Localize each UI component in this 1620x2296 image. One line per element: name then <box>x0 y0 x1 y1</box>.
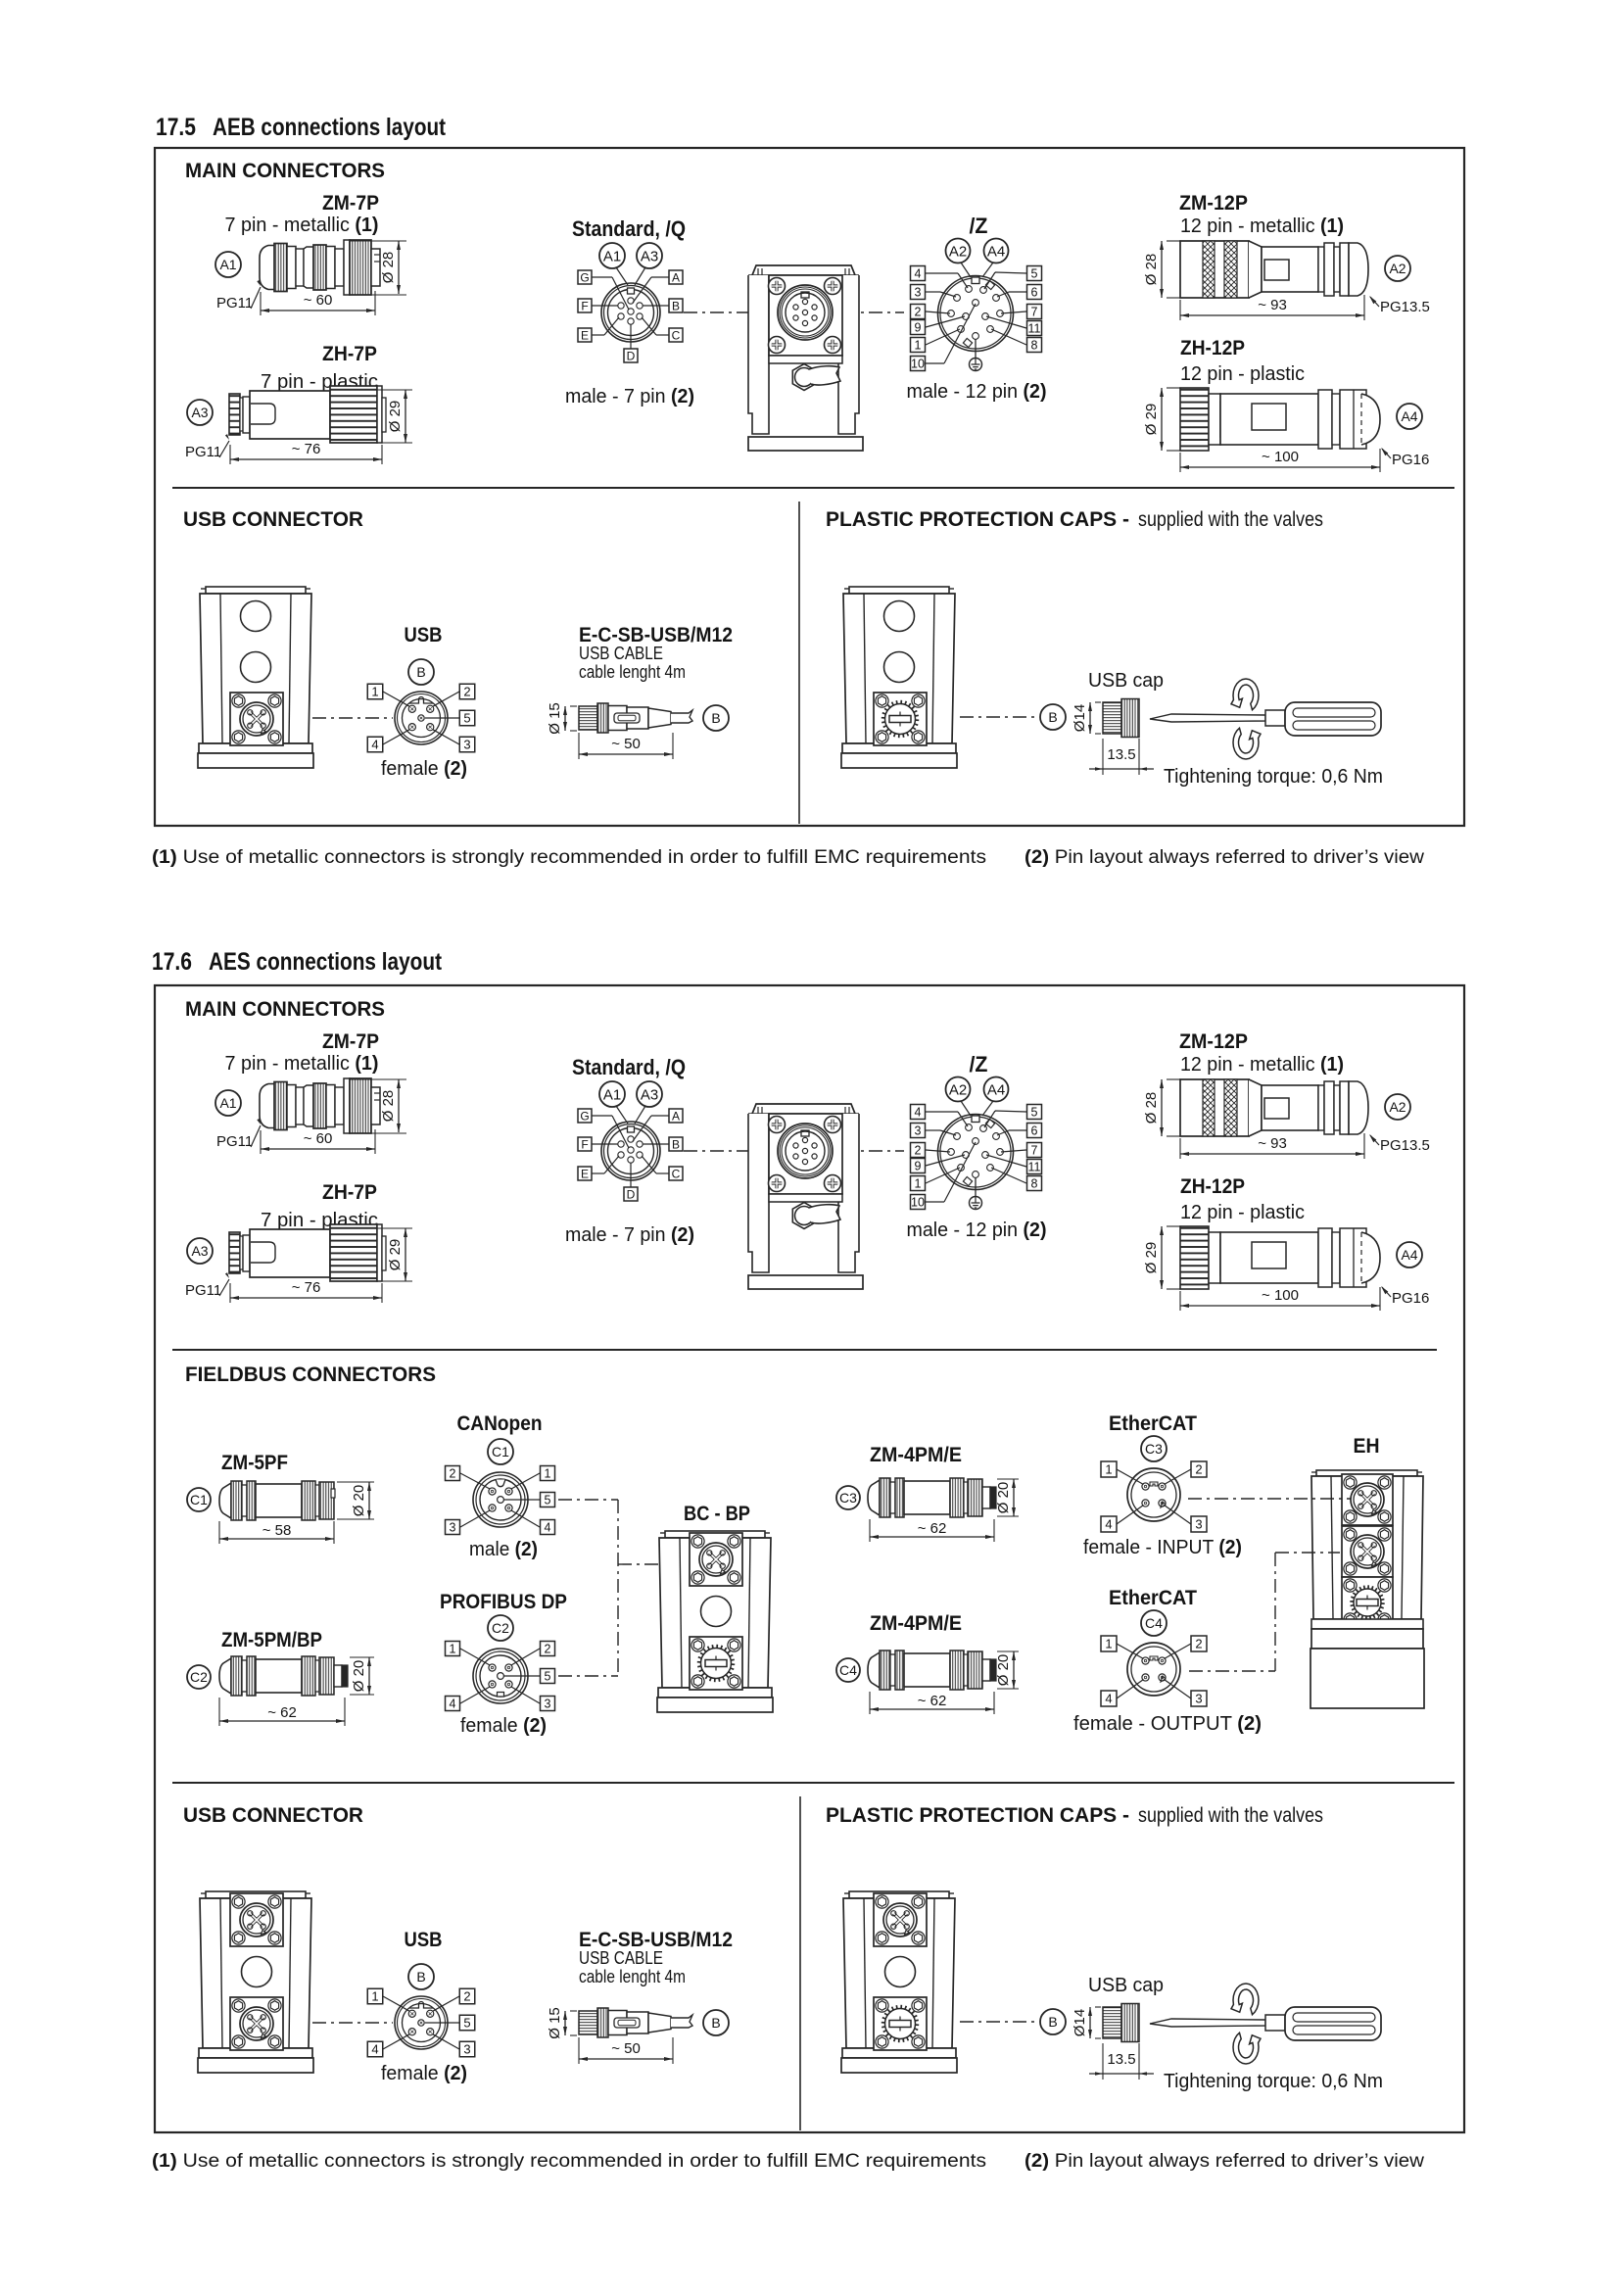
svg-text:Ø 29: Ø 29 <box>1143 404 1160 436</box>
svg-text:~ 76: ~ 76 <box>292 441 321 457</box>
svg-text:A2: A2 <box>1389 261 1406 276</box>
svg-text:4: 4 <box>371 738 378 752</box>
svg-text:ZM-7P: ZM-7P <box>322 192 379 215</box>
svg-text:E: E <box>581 328 589 342</box>
svg-text:Standard, /Q: Standard, /Q <box>572 216 686 241</box>
svg-text:2: 2 <box>545 1643 551 1656</box>
svg-text:~ 62: ~ 62 <box>918 1693 947 1709</box>
svg-text:3: 3 <box>545 1698 551 1711</box>
svg-text:6: 6 <box>1031 286 1038 300</box>
svg-text:A4: A4 <box>1401 408 1417 424</box>
svg-text:17.6: 17.6 <box>152 948 192 976</box>
svg-text:7 pin - metallic (1): 7 pin - metallic (1) <box>225 215 379 236</box>
svg-text:1: 1 <box>1105 1462 1112 1477</box>
svg-text:EtherCAT: EtherCAT <box>1109 1587 1197 1609</box>
svg-text:10: 10 <box>911 358 925 371</box>
svg-text:7: 7 <box>1031 306 1038 319</box>
svg-text:female - INPUT (2): female - INPUT (2) <box>1083 1537 1242 1558</box>
svg-text:PG13.5: PG13.5 <box>1380 299 1430 315</box>
svg-text:Ø 20: Ø 20 <box>351 1660 367 1693</box>
svg-text:Ø 28: Ø 28 <box>380 252 397 284</box>
svg-text:13.5: 13.5 <box>1107 746 1135 763</box>
svg-text:2: 2 <box>450 1467 456 1481</box>
svg-text:C2: C2 <box>492 1620 509 1636</box>
svg-text:4: 4 <box>1105 1692 1112 1706</box>
svg-text:B: B <box>1048 709 1057 725</box>
svg-text:/Z: /Z <box>970 214 988 238</box>
svg-text:C1: C1 <box>492 1444 509 1459</box>
svg-text:2: 2 <box>463 685 470 699</box>
svg-text:B: B <box>672 299 680 312</box>
svg-text:C3: C3 <box>1145 1441 1163 1457</box>
svg-text:3: 3 <box>1195 1692 1202 1706</box>
svg-text:C4: C4 <box>1145 1615 1163 1631</box>
svg-text:Ø 28: Ø 28 <box>1143 254 1160 286</box>
svg-text:(2) Pin layout always referred: (2) Pin layout always referred to driver… <box>1024 847 1424 868</box>
svg-text:EtherCAT: EtherCAT <box>1109 1412 1197 1435</box>
svg-text:C2: C2 <box>190 1669 208 1685</box>
svg-text:8: 8 <box>1031 339 1038 353</box>
svg-text:A1: A1 <box>219 257 236 272</box>
svg-text:female (2): female (2) <box>381 758 467 780</box>
svg-text:2: 2 <box>1195 1637 1202 1651</box>
svg-text:F: F <box>581 299 588 312</box>
svg-text:female (2): female (2) <box>460 1715 547 1737</box>
svg-text:Ø 20: Ø 20 <box>995 1482 1012 1514</box>
svg-text:C3: C3 <box>839 1490 857 1506</box>
svg-text:5: 5 <box>463 711 470 726</box>
svg-text:~ 50: ~ 50 <box>611 736 641 752</box>
svg-text:ZM-5PF: ZM-5PF <box>221 1452 288 1474</box>
svg-text:female - OUTPUT (2): female - OUTPUT (2) <box>1073 1713 1262 1735</box>
svg-text:5: 5 <box>1031 267 1038 281</box>
svg-text:~ 62: ~ 62 <box>267 1704 297 1721</box>
svg-text:PLASTIC PROTECTION CAPS -: PLASTIC PROTECTION CAPS - <box>826 508 1129 531</box>
svg-text:G: G <box>580 270 589 284</box>
svg-text:~ 58: ~ 58 <box>262 1522 292 1539</box>
svg-text:Ø 20: Ø 20 <box>995 1654 1012 1687</box>
svg-text:AES connections layout: AES connections layout <box>209 948 443 976</box>
svg-text:male - 7 pin (2): male - 7 pin (2) <box>565 386 694 407</box>
svg-text:2: 2 <box>915 306 922 319</box>
svg-text:male (2): male (2) <box>469 1539 538 1560</box>
svg-text:9: 9 <box>915 321 922 335</box>
svg-text:D: D <box>627 349 636 362</box>
svg-text:~ 93: ~ 93 <box>1258 297 1287 313</box>
svg-text:ZH-12P: ZH-12P <box>1180 337 1245 359</box>
svg-text:PLASTIC PROTECTION CAPS -: PLASTIC PROTECTION CAPS - <box>826 1804 1129 1827</box>
svg-text:PG11: PG11 <box>185 444 221 460</box>
svg-text:A3: A3 <box>641 248 658 264</box>
svg-text:C4: C4 <box>839 1662 857 1678</box>
svg-text:USB: USB <box>405 624 443 646</box>
svg-text:12 pin - plastic: 12 pin - plastic <box>1180 363 1305 385</box>
svg-text:BC - BP: BC - BP <box>684 1503 750 1525</box>
svg-text:EH: EH <box>1354 1435 1380 1458</box>
svg-text:B: B <box>711 710 720 726</box>
svg-text:USB CONNECTOR: USB CONNECTOR <box>183 508 363 531</box>
svg-text:Tightening torque: 0,6 Nm: Tightening torque: 0,6 Nm <box>1164 766 1383 788</box>
svg-text:supplied with the valves: supplied with the valves <box>1138 508 1323 531</box>
svg-text:MAIN CONNECTORS: MAIN CONNECTORS <box>185 160 385 182</box>
svg-text:ZM-5PM/BP: ZM-5PM/BP <box>221 1629 322 1651</box>
svg-text:~ 100: ~ 100 <box>1262 449 1299 465</box>
svg-text:5: 5 <box>545 1670 551 1684</box>
svg-text:B: B <box>416 664 425 680</box>
svg-text:ZH-7P: ZH-7P <box>322 343 377 365</box>
svg-text:~ 60: ~ 60 <box>304 292 333 309</box>
svg-text:A3: A3 <box>191 405 208 420</box>
svg-text:4: 4 <box>450 1698 456 1711</box>
svg-text:C1: C1 <box>190 1492 208 1507</box>
svg-text:3: 3 <box>450 1521 456 1535</box>
svg-text:12 pin - metallic (1): 12 pin - metallic (1) <box>1180 215 1344 237</box>
svg-text:(1) Use of metallic connectors: (1) Use of metallic connectors is strong… <box>152 2151 986 2172</box>
svg-text:ZM-4PM/E: ZM-4PM/E <box>870 1444 962 1466</box>
svg-text:Ø14: Ø14 <box>1072 704 1088 732</box>
svg-text:USB cap: USB cap <box>1088 670 1164 692</box>
svg-text:~ 62: ~ 62 <box>918 1520 947 1537</box>
svg-text:FIELDBUS CONNECTORS: FIELDBUS CONNECTORS <box>185 1363 436 1386</box>
svg-text:PROFIBUS DP: PROFIBUS DP <box>440 1591 567 1613</box>
svg-text:cable lenght 4m: cable lenght 4m <box>579 662 686 682</box>
svg-text:5: 5 <box>545 1494 551 1507</box>
svg-text:A4: A4 <box>987 243 1005 260</box>
svg-text:C: C <box>672 328 681 342</box>
svg-text:1: 1 <box>1105 1637 1112 1651</box>
svg-text:2: 2 <box>1195 1462 1202 1477</box>
svg-text:4: 4 <box>545 1521 551 1535</box>
svg-text:USB CONNECTOR: USB CONNECTOR <box>183 1804 363 1827</box>
svg-text:AEB connections layout: AEB connections layout <box>213 114 447 141</box>
svg-text:17.5: 17.5 <box>156 114 196 141</box>
svg-text:1: 1 <box>545 1467 551 1481</box>
svg-text:supplied with the valves: supplied with the valves <box>1138 1804 1323 1827</box>
svg-text:male - 12 pin (2): male - 12 pin (2) <box>907 381 1047 403</box>
svg-text:4: 4 <box>1105 1517 1112 1532</box>
svg-text:(2) Pin layout always referred: (2) Pin layout always referred to driver… <box>1024 2151 1424 2172</box>
svg-text:1: 1 <box>371 685 378 699</box>
svg-text:CANopen: CANopen <box>457 1412 543 1435</box>
svg-text:11: 11 <box>1028 322 1041 336</box>
svg-text:3: 3 <box>1195 1517 1202 1532</box>
svg-text:(1) Use of metallic connectors: (1) Use of metallic connectors is strong… <box>152 847 986 868</box>
svg-text:Ø 29: Ø 29 <box>387 401 404 433</box>
svg-text:PG16: PG16 <box>1392 452 1429 468</box>
svg-text:3: 3 <box>915 286 922 300</box>
svg-text:Ø 15: Ø 15 <box>547 702 563 735</box>
svg-text:A1: A1 <box>603 248 621 264</box>
svg-text:A2: A2 <box>949 243 967 260</box>
svg-text:1: 1 <box>915 339 922 353</box>
svg-text:ZM-4PM/E: ZM-4PM/E <box>870 1612 962 1635</box>
svg-text:Ø 20: Ø 20 <box>351 1485 367 1517</box>
svg-text:1: 1 <box>450 1643 456 1656</box>
svg-text:PG11: PG11 <box>216 295 253 311</box>
svg-text:4: 4 <box>915 267 922 281</box>
svg-text:ZM-12P: ZM-12P <box>1179 192 1248 215</box>
svg-text:A: A <box>672 270 680 284</box>
svg-text:3: 3 <box>463 738 470 752</box>
svg-text:USB CABLE: USB CABLE <box>579 644 663 663</box>
